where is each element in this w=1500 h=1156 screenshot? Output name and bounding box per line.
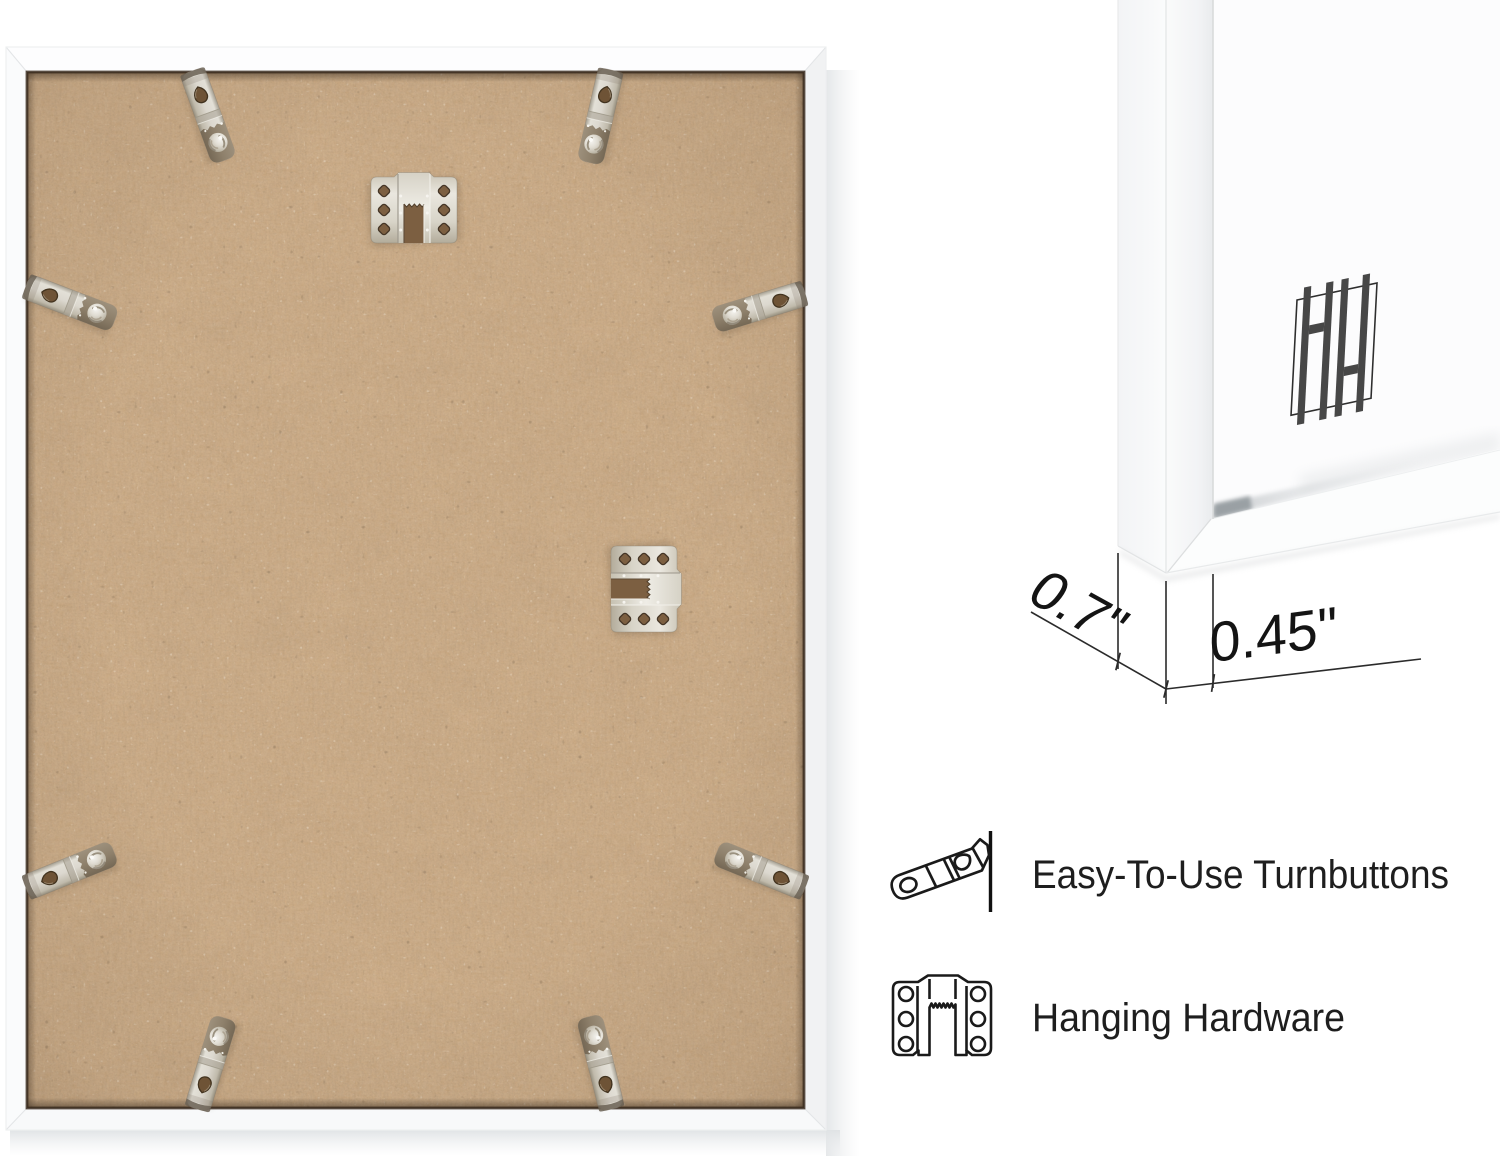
svg-text:Hanging Hardware: Hanging Hardware (1032, 996, 1345, 1040)
svg-text:0.45": 0.45" (1209, 594, 1338, 674)
svg-text:Easy-To-Use Turnbuttons: Easy-To-Use Turnbuttons (1032, 853, 1449, 897)
svg-text:0.7": 0.7" (1017, 558, 1141, 656)
